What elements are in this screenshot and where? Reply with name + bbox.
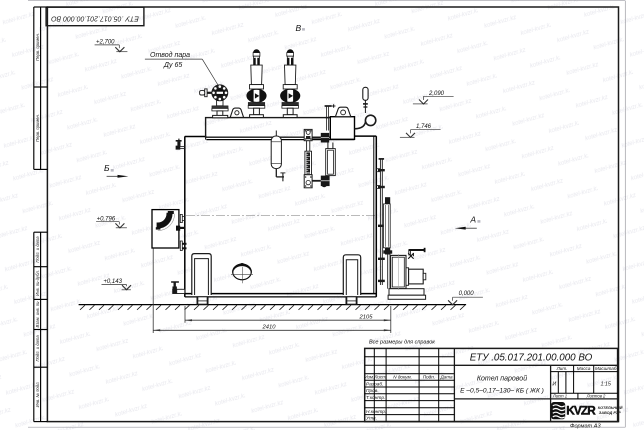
svg-text:2410: 2410 <box>262 325 277 331</box>
svg-text:Инв. № дубл.: Инв. № дубл. <box>35 270 40 296</box>
svg-text:Перв. примен.: Перв. примен. <box>35 114 40 142</box>
svg-text:КОТЕЛЬНЫЙ: КОТЕЛЬНЫЙ <box>598 406 623 410</box>
svg-text:Формат А3: Формат А3 <box>570 424 601 430</box>
svg-text:2105: 2105 <box>359 315 374 321</box>
svg-text:Перв. примен.: Перв. примен. <box>35 33 40 61</box>
svg-text:Масштаб: Масштаб <box>595 366 617 371</box>
svg-text:KVZR: KVZR <box>566 403 596 417</box>
svg-text:Все размеры для справок: Все размеры для справок <box>369 340 435 346</box>
svg-text:И: И <box>552 382 556 388</box>
svg-text:В: В <box>296 23 302 33</box>
svg-text:Дата: Дата <box>439 375 453 380</box>
svg-text:Котел паровой: Котел паровой <box>477 375 527 383</box>
svg-text:Подп.: Подп. <box>423 375 435 380</box>
svg-text:Инв. № подл.: Инв. № подл. <box>35 381 40 407</box>
svg-text:Е –0,5–0,17–130– КБ ( ЖК ): Е –0,5–0,17–130– КБ ( ЖК ) <box>460 388 544 395</box>
svg-text:Лист: Лист <box>373 375 386 380</box>
svg-text:Лит.: Лит. <box>556 366 568 371</box>
svg-text:Разраб.: Разраб. <box>366 381 383 387</box>
svg-text:Т.контр.: Т.контр. <box>366 395 385 401</box>
svg-text:+2,700: +2,700 <box>96 39 115 45</box>
svg-text:Отвод пара: Отвод пара <box>150 51 190 59</box>
svg-text:Пров.: Пров. <box>366 388 379 394</box>
svg-text:0,000: 0,000 <box>459 291 475 297</box>
svg-text:Подп. и дата: Подп. и дата <box>35 335 40 362</box>
svg-text:Взам. инв. №: Взам. инв. № <box>35 301 40 327</box>
svg-text:Н.контр.: Н.контр. <box>366 409 386 415</box>
svg-text:N докум.: N докум. <box>393 375 412 380</box>
svg-text:Подп. и дата: Подп. и дата <box>35 236 40 263</box>
svg-text:ЗАВОД РЗР: ЗАВОД РЗР <box>599 411 621 415</box>
svg-text:Листов 2: Листов 2 <box>586 394 606 399</box>
svg-text:2,090: 2,090 <box>428 91 445 97</box>
svg-text:Масса: Масса <box>577 366 591 371</box>
svg-text:Утв.: Утв. <box>366 416 377 422</box>
svg-text:Ду 65: Ду 65 <box>163 62 182 69</box>
svg-text:1:15: 1:15 <box>600 382 611 388</box>
svg-text:ЕТУ .05.017.201.00.000 ВО: ЕТУ .05.017.201.00.000 ВО <box>51 15 139 22</box>
svg-text:А: А <box>469 215 476 225</box>
svg-text:1,746: 1,746 <box>416 124 432 130</box>
svg-text:Б: Б <box>104 163 110 173</box>
svg-text:Изм.: Изм. <box>365 375 375 380</box>
svg-text:Лист 1: Лист 1 <box>552 394 567 399</box>
svg-text:ЕТУ .05.017.201.00.000 ВО: ЕТУ .05.017.201.00.000 ВО <box>470 353 593 364</box>
